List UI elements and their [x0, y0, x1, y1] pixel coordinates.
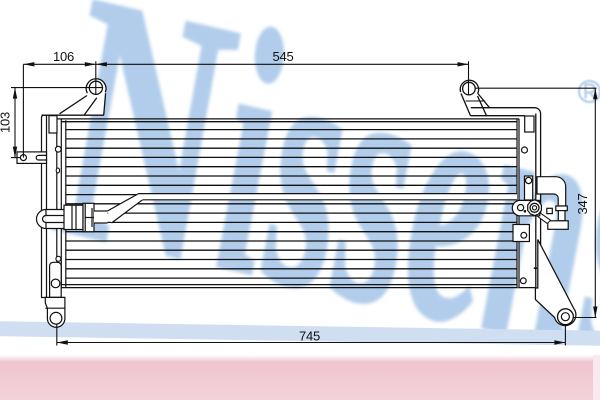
svg-text:347: 347: [575, 193, 590, 214]
svg-text:545: 545: [272, 49, 293, 64]
svg-text:745: 745: [299, 329, 320, 344]
svg-text:106: 106: [53, 49, 74, 64]
svg-text:103: 103: [0, 112, 13, 133]
